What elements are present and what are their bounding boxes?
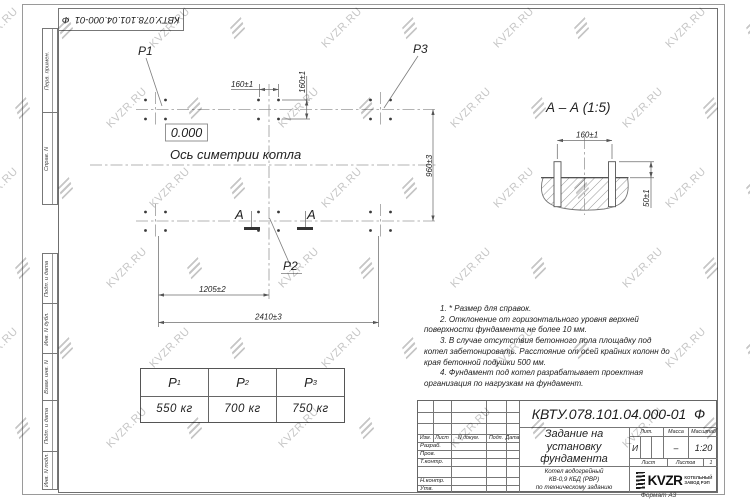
tb-product-name: Котел водогрейный КВ-0,9 КБД (РВР) по те… <box>519 467 630 493</box>
tb-tkontr: Т.контр. <box>418 458 450 466</box>
tb-doc-number: КВТУ.078.101.04.000-01 Ф <box>519 401 718 428</box>
tb-lit-cell <box>652 437 664 458</box>
tb-mass-label: Масса <box>664 428 689 437</box>
load-value: 550 кг <box>141 396 208 422</box>
tb-ndocum: N докум. <box>451 434 486 442</box>
section-letter-left: А <box>234 207 244 222</box>
tb-mass-value: – <box>664 437 689 458</box>
tb-prov: Пров. <box>418 450 450 458</box>
section-cut-marks <box>244 211 313 229</box>
dim-section-50: 50±1 <box>642 189 651 207</box>
title-block: Изм. Лист N докум. Подп. Дата Разраб. Пр… <box>417 400 717 492</box>
load-sub: 3 <box>313 378 317 387</box>
tb-utv: Утв. <box>418 485 450 493</box>
load-label-p2: P2 <box>283 259 298 273</box>
tb-company-cell: KVZR КОТЕЛЬНЫЙ ЗАВОД РЭП <box>630 467 718 493</box>
tb-lit-cell <box>641 437 652 458</box>
kvzr-logo-icon <box>636 472 645 489</box>
tb-sheet-label: Лист <box>630 458 668 467</box>
tb-product-line: КВ-0,9 КБД (РВР) <box>549 476 599 484</box>
note-3: 3. В случае отсутствия бетонного пола пл… <box>424 336 670 368</box>
load-name: P <box>304 375 313 390</box>
load-table-header: P2 <box>209 369 276 395</box>
note-1: 1. * Размер для справок. <box>424 304 670 315</box>
tb-list: Лист <box>433 434 451 442</box>
tb-title-line: фундамента <box>540 453 608 466</box>
dim-960: 960±3 <box>425 154 434 177</box>
centerlines <box>90 84 437 299</box>
load-name: P <box>168 375 177 390</box>
dim-1205: 1205±2 <box>199 285 226 294</box>
tb-blank-row <box>418 466 450 477</box>
tb-document-title: Задание на установку фундамента <box>519 428 630 467</box>
load-label-p3: P3 <box>413 42 428 56</box>
tb-scale-label: Масштаб <box>689 428 718 437</box>
tb-podp: Подп. <box>486 434 506 442</box>
tb-razrab: Разраб. <box>418 442 450 450</box>
note-4: 4. Фундамент под котел разрабатывает про… <box>424 368 670 389</box>
dim-160-vertical: 160±1 <box>298 71 307 93</box>
kvzr-sub-line: ЗАВОД РЭП <box>684 480 712 485</box>
load-sub: 1 <box>177 378 181 387</box>
tb-title-line: установку <box>547 441 602 454</box>
tb-lit-label: Лит. <box>630 428 664 437</box>
dim-2410: 2410±3 <box>254 313 282 322</box>
load-value: 700 кг <box>209 396 276 422</box>
format-label: Формат А3 <box>600 492 717 499</box>
section-letter-right: А <box>306 207 316 222</box>
tb-line <box>506 401 507 493</box>
tb-sheets-value: 1 <box>704 458 718 467</box>
tb-line <box>451 401 452 493</box>
level-mark: 0.000 <box>171 126 202 140</box>
load-sub: 2 <box>245 378 249 387</box>
note-2: 2. Отклонение от горизонтального уровня … <box>424 315 670 336</box>
load-value: 750 кг <box>277 396 344 422</box>
section-view-title: А – А (1:5) <box>545 100 611 115</box>
load-table-header: P3 <box>277 369 344 395</box>
dim-160-horizontal: 160±1 <box>231 80 253 89</box>
load-table-header: P1 <box>141 369 208 395</box>
tb-data: Дата <box>506 434 519 442</box>
section-view: А – А (1:5) 160±1 50±1 <box>541 100 654 215</box>
kvzr-logo-text: KVZR <box>648 473 683 488</box>
tb-product-line: по техническому заданию <box>536 484 612 492</box>
drawing-sheet: Перв. примен. Справ. N Подп. и дата Инв.… <box>0 0 750 500</box>
tb-line <box>486 401 487 493</box>
tb-lit-value: И <box>630 437 641 458</box>
tb-izm: Изм. <box>418 434 433 442</box>
kvzr-logo-subtitle: КОТЕЛЬНЫЙ ЗАВОД РЭП <box>684 475 712 485</box>
technical-notes: 1. * Размер для справок. 2. Отклонение о… <box>424 304 670 390</box>
axis-of-symmetry-label: Ось симетрии котла <box>170 147 301 162</box>
load-label-p1: P1 <box>138 44 153 58</box>
load-name: P <box>236 375 245 390</box>
tb-nkontr: Н.контр. <box>418 477 450 485</box>
plan-view: 0.000 Ось симетрии котла P1 P3 P2 А А <box>90 42 437 327</box>
tb-scale-value: 1:20 <box>689 437 718 458</box>
tb-product-line: Котел водогрейный <box>545 468 604 476</box>
tb-sheets-label: Листов <box>668 458 704 467</box>
dim-section-160: 160±1 <box>576 131 598 140</box>
tb-title-line: Задание на <box>545 428 604 441</box>
load-table: P1 P2 P3 550 кг 700 кг 750 кг <box>140 368 345 423</box>
